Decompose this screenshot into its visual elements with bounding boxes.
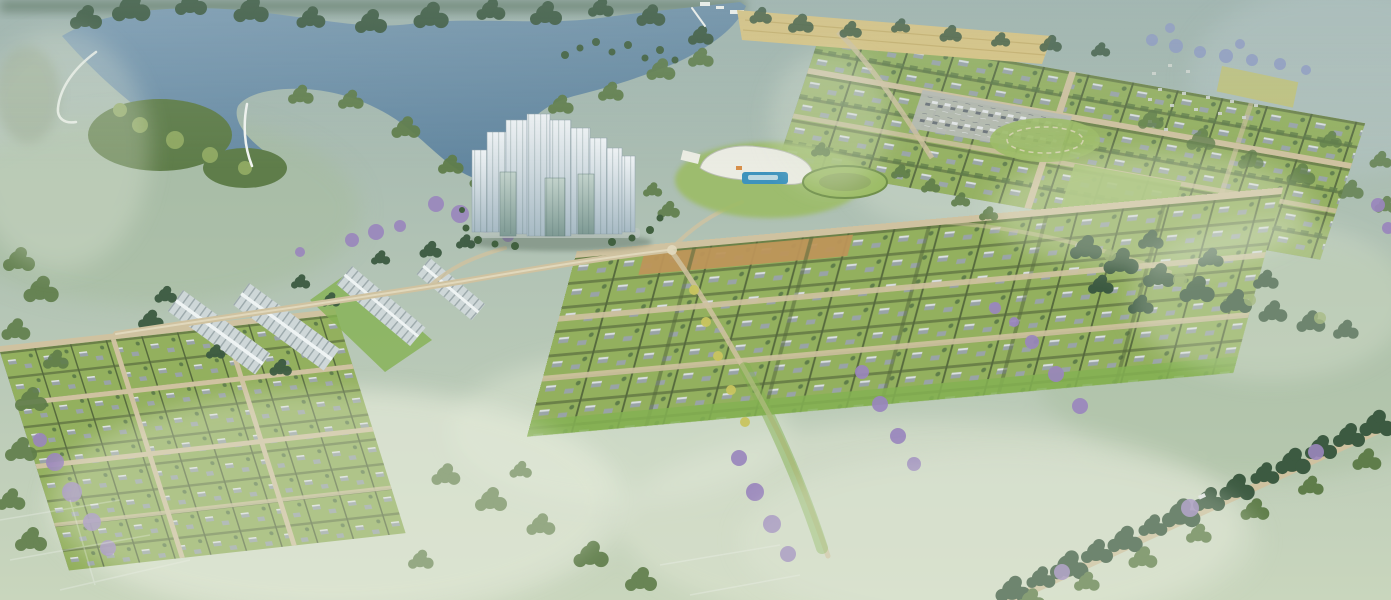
aerial-render: [0, 0, 1391, 600]
pool-highlight: [748, 175, 778, 180]
scene-svg: [0, 0, 1391, 600]
road-junction: [667, 245, 677, 255]
top-haze: [0, 0, 1391, 170]
